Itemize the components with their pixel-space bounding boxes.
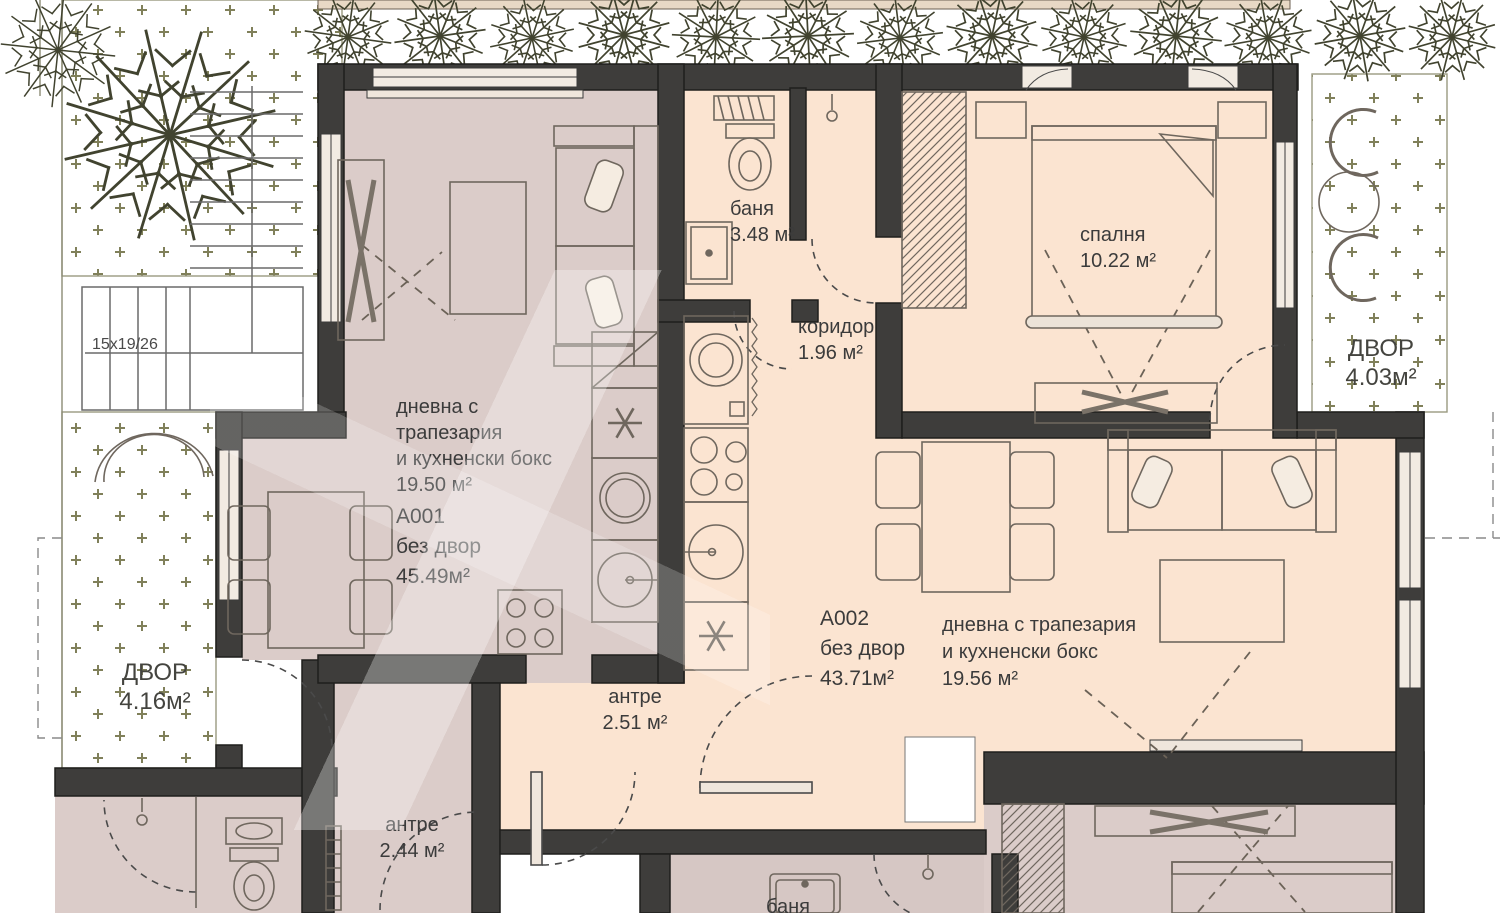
wardrobe-bedroom2 xyxy=(1002,804,1064,913)
bathroom-bl-fill xyxy=(55,790,305,913)
unit-area: 43.71м² xyxy=(820,664,905,694)
room-area: 3.48 м² xyxy=(730,222,795,248)
room-area: 2.44 м² xyxy=(364,838,460,864)
unit-code: A001 xyxy=(396,502,481,532)
yard-name: ДВОР xyxy=(1326,334,1436,363)
room-name: антре xyxy=(364,812,460,838)
room-area: 2.51 м² xyxy=(592,710,678,736)
label-line: и кухненски бокс xyxy=(396,446,552,472)
floor-plan: 15x19/26 баня 3.48 м² коридор 1.96 м² сп… xyxy=(0,0,1500,913)
room-label-corridor: коридор 1.96 м² xyxy=(798,314,874,366)
room-label-hall-a001: антре 2.44 м² xyxy=(364,812,460,864)
room-name: баня xyxy=(730,196,795,222)
room-area: 10.22 м² xyxy=(1080,248,1156,274)
label-line: и кухненски бокс xyxy=(942,639,1136,666)
stairs-label: 15x19/26 xyxy=(92,332,158,358)
unit-label-a002: A002 без двор 43.71м² xyxy=(820,604,905,694)
room-area: 1.96 м² xyxy=(798,340,874,366)
wardrobe-bedroom xyxy=(902,92,966,308)
unit-note: без двор xyxy=(820,634,905,664)
door-leaf xyxy=(531,772,542,865)
room-label-a001-living: дневна с трапезария и кухненски бокс 19.… xyxy=(396,394,552,498)
room-name: антре xyxy=(592,684,678,710)
room-label-bathroom-top: баня 3.48 м² xyxy=(730,196,795,248)
label-area: 19.56 м² xyxy=(942,666,1136,693)
unit-note: без двор xyxy=(396,532,481,562)
yard-left-label: ДВОР 4.16м² xyxy=(90,658,220,716)
unit-code: A002 xyxy=(820,604,905,634)
unit-area: 45.49м² xyxy=(396,562,481,592)
shaft xyxy=(905,737,975,822)
unit-label-a001: A001 без двор 45.49м² xyxy=(396,502,481,592)
door-leaf xyxy=(700,782,812,793)
top-border-strip xyxy=(318,0,1290,9)
bathroom-bottom-fill xyxy=(670,854,992,913)
yard-area: 4.03м² xyxy=(1326,363,1436,392)
yard-name: ДВОР xyxy=(90,658,220,687)
label-line: трапезария xyxy=(396,420,552,446)
floor-plan-drawing xyxy=(0,0,1500,913)
garden-top-left xyxy=(62,0,342,276)
label-line: дневна с xyxy=(396,394,552,420)
room-label-bedroom: спалня 10.22 м² xyxy=(1080,222,1156,274)
room-label-bathroom-bottom: баня xyxy=(766,894,810,913)
room-name: коридор xyxy=(798,314,874,340)
room-label-a002-living: дневна с трапезария и кухненски бокс 19.… xyxy=(942,612,1136,693)
room-label-hall-a002: антре 2.51 м² xyxy=(592,684,678,736)
room-name: спалня xyxy=(1080,222,1156,248)
label-line: дневна с трапезария xyxy=(942,612,1136,639)
room-name: баня xyxy=(766,894,810,913)
yard-right-label: ДВОР 4.03м² xyxy=(1326,334,1436,392)
yard-area: 4.16м² xyxy=(90,687,220,716)
label-area: 19.50 м² xyxy=(396,472,552,498)
